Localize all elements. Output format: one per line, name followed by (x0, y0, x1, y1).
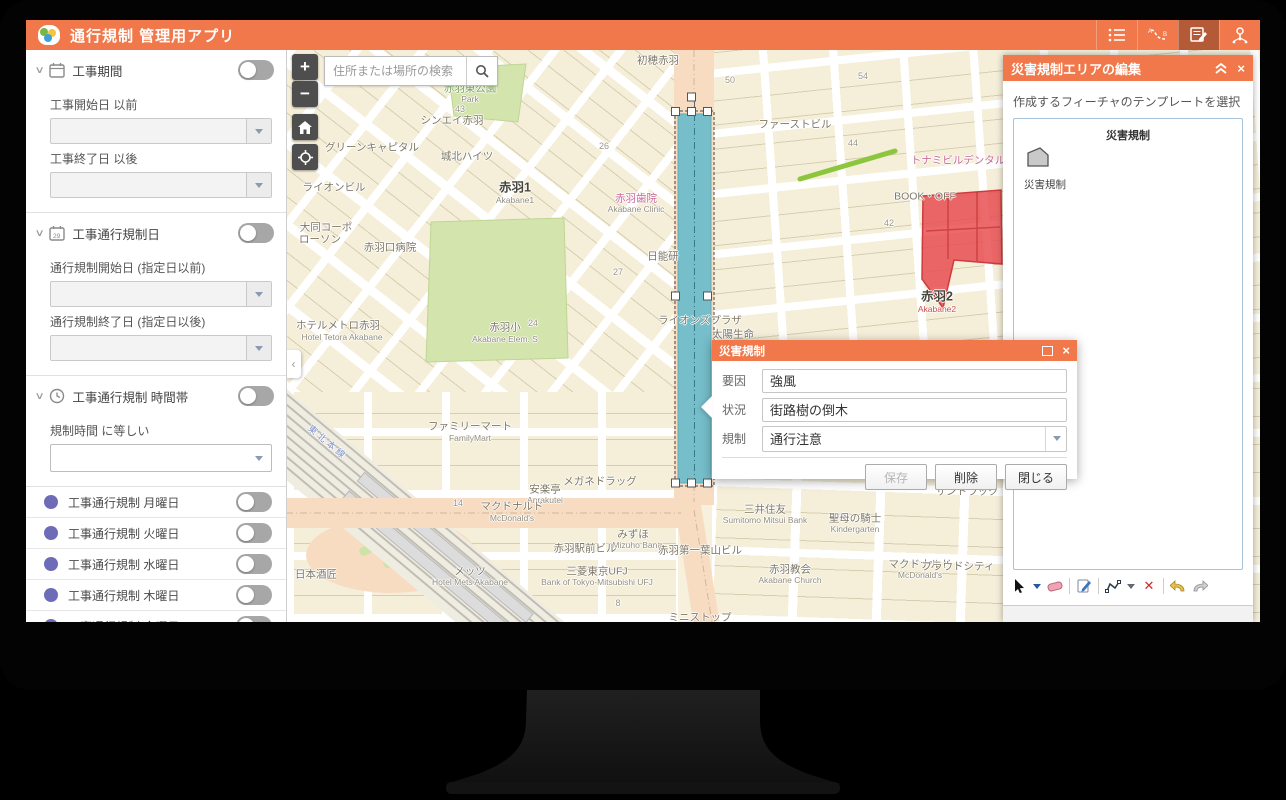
edit-plan-icon[interactable] (1178, 20, 1219, 50)
field-label-cause: 要因 (722, 372, 762, 389)
template-group-title: 災害規制 (1014, 119, 1242, 143)
undo-icon[interactable] (1170, 578, 1186, 594)
search-input[interactable] (325, 64, 466, 78)
chevron-down-icon[interactable]: ∨ (35, 228, 45, 239)
section-construction-period: ∨ 工事期間 (26, 50, 286, 86)
dialog-callout-tail (701, 396, 712, 418)
close-button[interactable]: 閉じる (1005, 464, 1067, 490)
calendar-icon (49, 62, 65, 78)
map-label: グリーンキャピタル (325, 140, 419, 155)
map-label: Akabane Elem. S (472, 334, 538, 344)
end-date-dropdown[interactable] (50, 172, 272, 198)
save-button[interactable]: 保存 (865, 464, 927, 490)
selected-road-feature (672, 93, 715, 487)
day-filter-label: 工事通行規制 水曜日 (68, 556, 179, 573)
select-arrow-icon[interactable] (1011, 578, 1027, 594)
redo-icon[interactable] (1192, 578, 1208, 594)
map-label: FamilyMart (449, 433, 491, 443)
day-filter-row: 工事通行規制 金曜日 (26, 611, 286, 622)
day-filter-label: 工事通行規制 木曜日 (68, 587, 179, 604)
app-title: 通行規制 管理用アプリ (70, 25, 235, 46)
map-label: Park (461, 94, 478, 104)
map-label: Bank of Tokyo-Mitsubishi UFJ (541, 577, 653, 587)
edit-panel: 災害規制エリアの編集 × 作成するフィーチャのテンプレートを選択 災害規制 災害… (1003, 55, 1253, 622)
reshape-polyline-icon[interactable] (1105, 578, 1121, 594)
map-label: 赤羽口病院 (364, 240, 417, 255)
map-label: 50 (725, 75, 735, 85)
field-label: 工事終了日 以後 (50, 150, 272, 167)
day-color-dot (44, 495, 58, 509)
map-label: Hotel Tetora Akabane (301, 332, 382, 342)
map-label: Hotel Mets Akabane (432, 577, 508, 587)
chevron-down-icon[interactable]: ∨ (35, 391, 45, 402)
day-filter-toggle[interactable] (236, 554, 272, 574)
map-label: マクドナルド (481, 499, 544, 514)
map-label: 初穂赤羽 (637, 53, 679, 68)
day-color-dot (44, 588, 58, 602)
clock-icon (49, 388, 65, 404)
edit-toolbar: ✕ (1003, 570, 1253, 602)
dialog-title: 災害規制 (719, 343, 1042, 359)
map-label: 24 (528, 318, 538, 328)
delete-button[interactable]: 削除 (935, 464, 997, 490)
dialog-header: 災害規制 × (712, 340, 1077, 361)
map-label: 27 (613, 267, 623, 277)
map-label: ライオンズプラザ (658, 313, 742, 328)
attribute-dialog: 災害規制 × 要因 状況 規制 通行注意 保存 削除 (712, 340, 1077, 479)
green-regulation-line (800, 151, 895, 179)
delete-x-icon[interactable]: ✕ (1141, 578, 1157, 594)
day-filter-toggle[interactable] (236, 616, 272, 622)
map-label: McDonald's (490, 513, 534, 523)
reg-start-dropdown[interactable] (50, 281, 272, 307)
map-label: 赤羽2 (921, 286, 953, 305)
day-filter-list: 工事通行規制 月曜日 工事通行規制 火曜日 工事通行規制 水曜日 (26, 487, 286, 622)
section-regulation-date: ∨ 29 工事通行規制日 (26, 213, 286, 249)
template-item-label: 災害規制 (1024, 177, 1094, 192)
svg-text:29: 29 (53, 233, 61, 240)
day-filter-row: 工事通行規制 月曜日 (26, 487, 286, 518)
day-filter-label: 工事通行規制 火曜日 (68, 525, 179, 542)
start-date-dropdown[interactable] (50, 118, 272, 144)
map-label: Akabane Clinic (608, 204, 665, 214)
monitor-bezel: 通行規制 管理用アプリ AB ∨ 工事期間 工事開始日 以前 (0, 0, 1286, 690)
monitor-stand (0, 690, 1286, 800)
section-title: 工事通行規制日 (72, 224, 160, 243)
legend-list-icon[interactable] (1096, 20, 1137, 50)
map-label: Akabane Church (758, 575, 821, 585)
maximize-icon[interactable] (1042, 346, 1053, 356)
map-label: ホテルメトロ赤羽 (296, 318, 380, 333)
home-button[interactable] (292, 114, 318, 140)
field-label-situation: 状況 (722, 401, 762, 418)
map-label: 14 (453, 498, 463, 508)
day-color-dot (44, 526, 58, 540)
collapse-panel-icon[interactable] (1215, 63, 1227, 74)
search-icon[interactable] (466, 57, 497, 85)
field-label-regulation: 規制 (722, 430, 762, 447)
field-label: 工事開始日 以前 (50, 96, 272, 113)
svg-text:A: A (1148, 29, 1152, 35)
edit-panel-header: 災害規制エリアの編集 × (1003, 55, 1253, 81)
regulation-value: 通行注意 (763, 429, 822, 448)
map-label: Sumitomo Mitsui Bank (723, 515, 808, 525)
section-title: 工事通行規制 時間帯 (72, 387, 188, 406)
template-item-disaster[interactable]: 災害規制 (1024, 145, 1094, 192)
period-filter-toggle[interactable] (238, 60, 274, 80)
map-label: 赤羽駅前ビル (554, 541, 617, 556)
route-ab-icon[interactable]: AB (1137, 20, 1178, 50)
map-label: Akabane1 (496, 195, 534, 205)
template-picker-hint: 作成するフィーチャのテンプレートを選択 (1003, 81, 1253, 118)
day-filter-toggle[interactable] (236, 523, 272, 543)
reg-end-dropdown[interactable] (50, 335, 272, 361)
close-panel-icon[interactable]: × (1237, 61, 1245, 76)
map-label: 44 (848, 138, 858, 148)
map-label: ファーストビル (759, 117, 832, 132)
map-label: トナミビルデンタル (911, 153, 1006, 168)
filter-sidebar: ∨ 工事期間 工事開始日 以前 工事終了日 以後 ∨ 29 工事通行規制日 通行… (26, 50, 287, 622)
svg-text:B: B (1163, 32, 1167, 38)
field-label: 通行規制開始日 (指定日以前) (50, 259, 272, 276)
locate-button[interactable] (292, 144, 318, 170)
map-label: Akabane2 (918, 304, 956, 314)
header-toolbar: AB (1096, 20, 1260, 50)
app-logo-icon (38, 25, 60, 45)
day-color-dot (44, 619, 58, 622)
map-label: 赤羽小 (489, 320, 521, 335)
calendar-date-icon: 29 (49, 225, 65, 241)
section-regulation-time: ∨ 工事通行規制 時間帯 (26, 376, 286, 412)
field-label: 通行規制終了日 (指定日以後) (50, 313, 272, 330)
edit-panel-title: 災害規制エリアの編集 (1011, 59, 1205, 78)
map-label: 26 (599, 141, 609, 151)
cause-input[interactable] (762, 369, 1067, 393)
app-window: 通行規制 管理用アプリ AB ∨ 工事期間 工事開始日 以前 (26, 20, 1260, 622)
map-label: BOOK・OFF (894, 189, 956, 204)
map-label: プラウドシティ (922, 559, 995, 574)
map-label: 城北ハイツ (441, 149, 493, 164)
day-color-dot (44, 557, 58, 571)
map-label: ローソン (299, 232, 341, 247)
map-label: 42 (884, 218, 894, 228)
time-combobox[interactable] (50, 444, 272, 472)
zoom-in-button[interactable]: + (292, 54, 318, 80)
map-label: 日本酒匠 (295, 567, 337, 582)
map-label: 7 (657, 542, 662, 552)
day-filter-row: 工事通行規制 水曜日 (26, 549, 286, 580)
reshape-dropdown-caret[interactable] (1127, 584, 1135, 589)
day-filter-row: 工事通行規制 木曜日 (26, 580, 286, 611)
regulation-time-toggle[interactable] (238, 386, 274, 406)
app-header: 通行規制 管理用アプリ AB (26, 20, 1260, 50)
map-label: 日能研 (647, 249, 679, 264)
map-label: 54 (858, 71, 868, 81)
section-title: 工事期間 (72, 61, 122, 80)
regulation-date-toggle[interactable] (238, 223, 274, 243)
edit-attributes-icon[interactable] (1076, 578, 1092, 594)
select-dropdown-caret[interactable] (1033, 584, 1041, 589)
map-label: 赤羽第一葉山ビル (658, 543, 742, 558)
sidebar-collapse-handle[interactable]: ‹ (286, 350, 301, 378)
map-label: ミニストップ (669, 610, 732, 623)
map-label: 赤羽1 (499, 177, 531, 196)
map-label: メガネドラッグ (563, 474, 637, 489)
map-label: ライオンビル (303, 180, 366, 195)
zoom-out-button[interactable]: − (292, 81, 318, 107)
map-label: Kindergarten (831, 524, 880, 534)
eraser-icon[interactable] (1047, 578, 1063, 594)
chevron-down-icon[interactable]: ∨ (35, 65, 45, 76)
day-filter-toggle[interactable] (236, 585, 272, 605)
polygon-template-icon (1024, 145, 1052, 169)
map-label: シンエイ赤羽 (421, 113, 484, 128)
map-label: Mizuho Bank (612, 540, 661, 550)
field-label: 規制時間 に等しい (50, 422, 272, 439)
day-filter-row: 工事通行規制 火曜日 (26, 518, 286, 549)
panel-footer (1003, 605, 1253, 622)
day-filter-label: 工事通行規制 月曜日 (68, 494, 179, 511)
regulation-select[interactable]: 通行注意 (762, 426, 1067, 452)
map-search (324, 56, 498, 86)
map-label: ファミリーマート (428, 419, 512, 434)
situation-input[interactable] (762, 398, 1067, 422)
close-icon[interactable]: × (1062, 344, 1070, 357)
day-filter-label: 工事通行規制 金曜日 (68, 618, 179, 623)
day-filter-toggle[interactable] (236, 492, 272, 512)
network-pin-icon[interactable] (1219, 20, 1260, 50)
map-label: 8 (615, 598, 620, 608)
